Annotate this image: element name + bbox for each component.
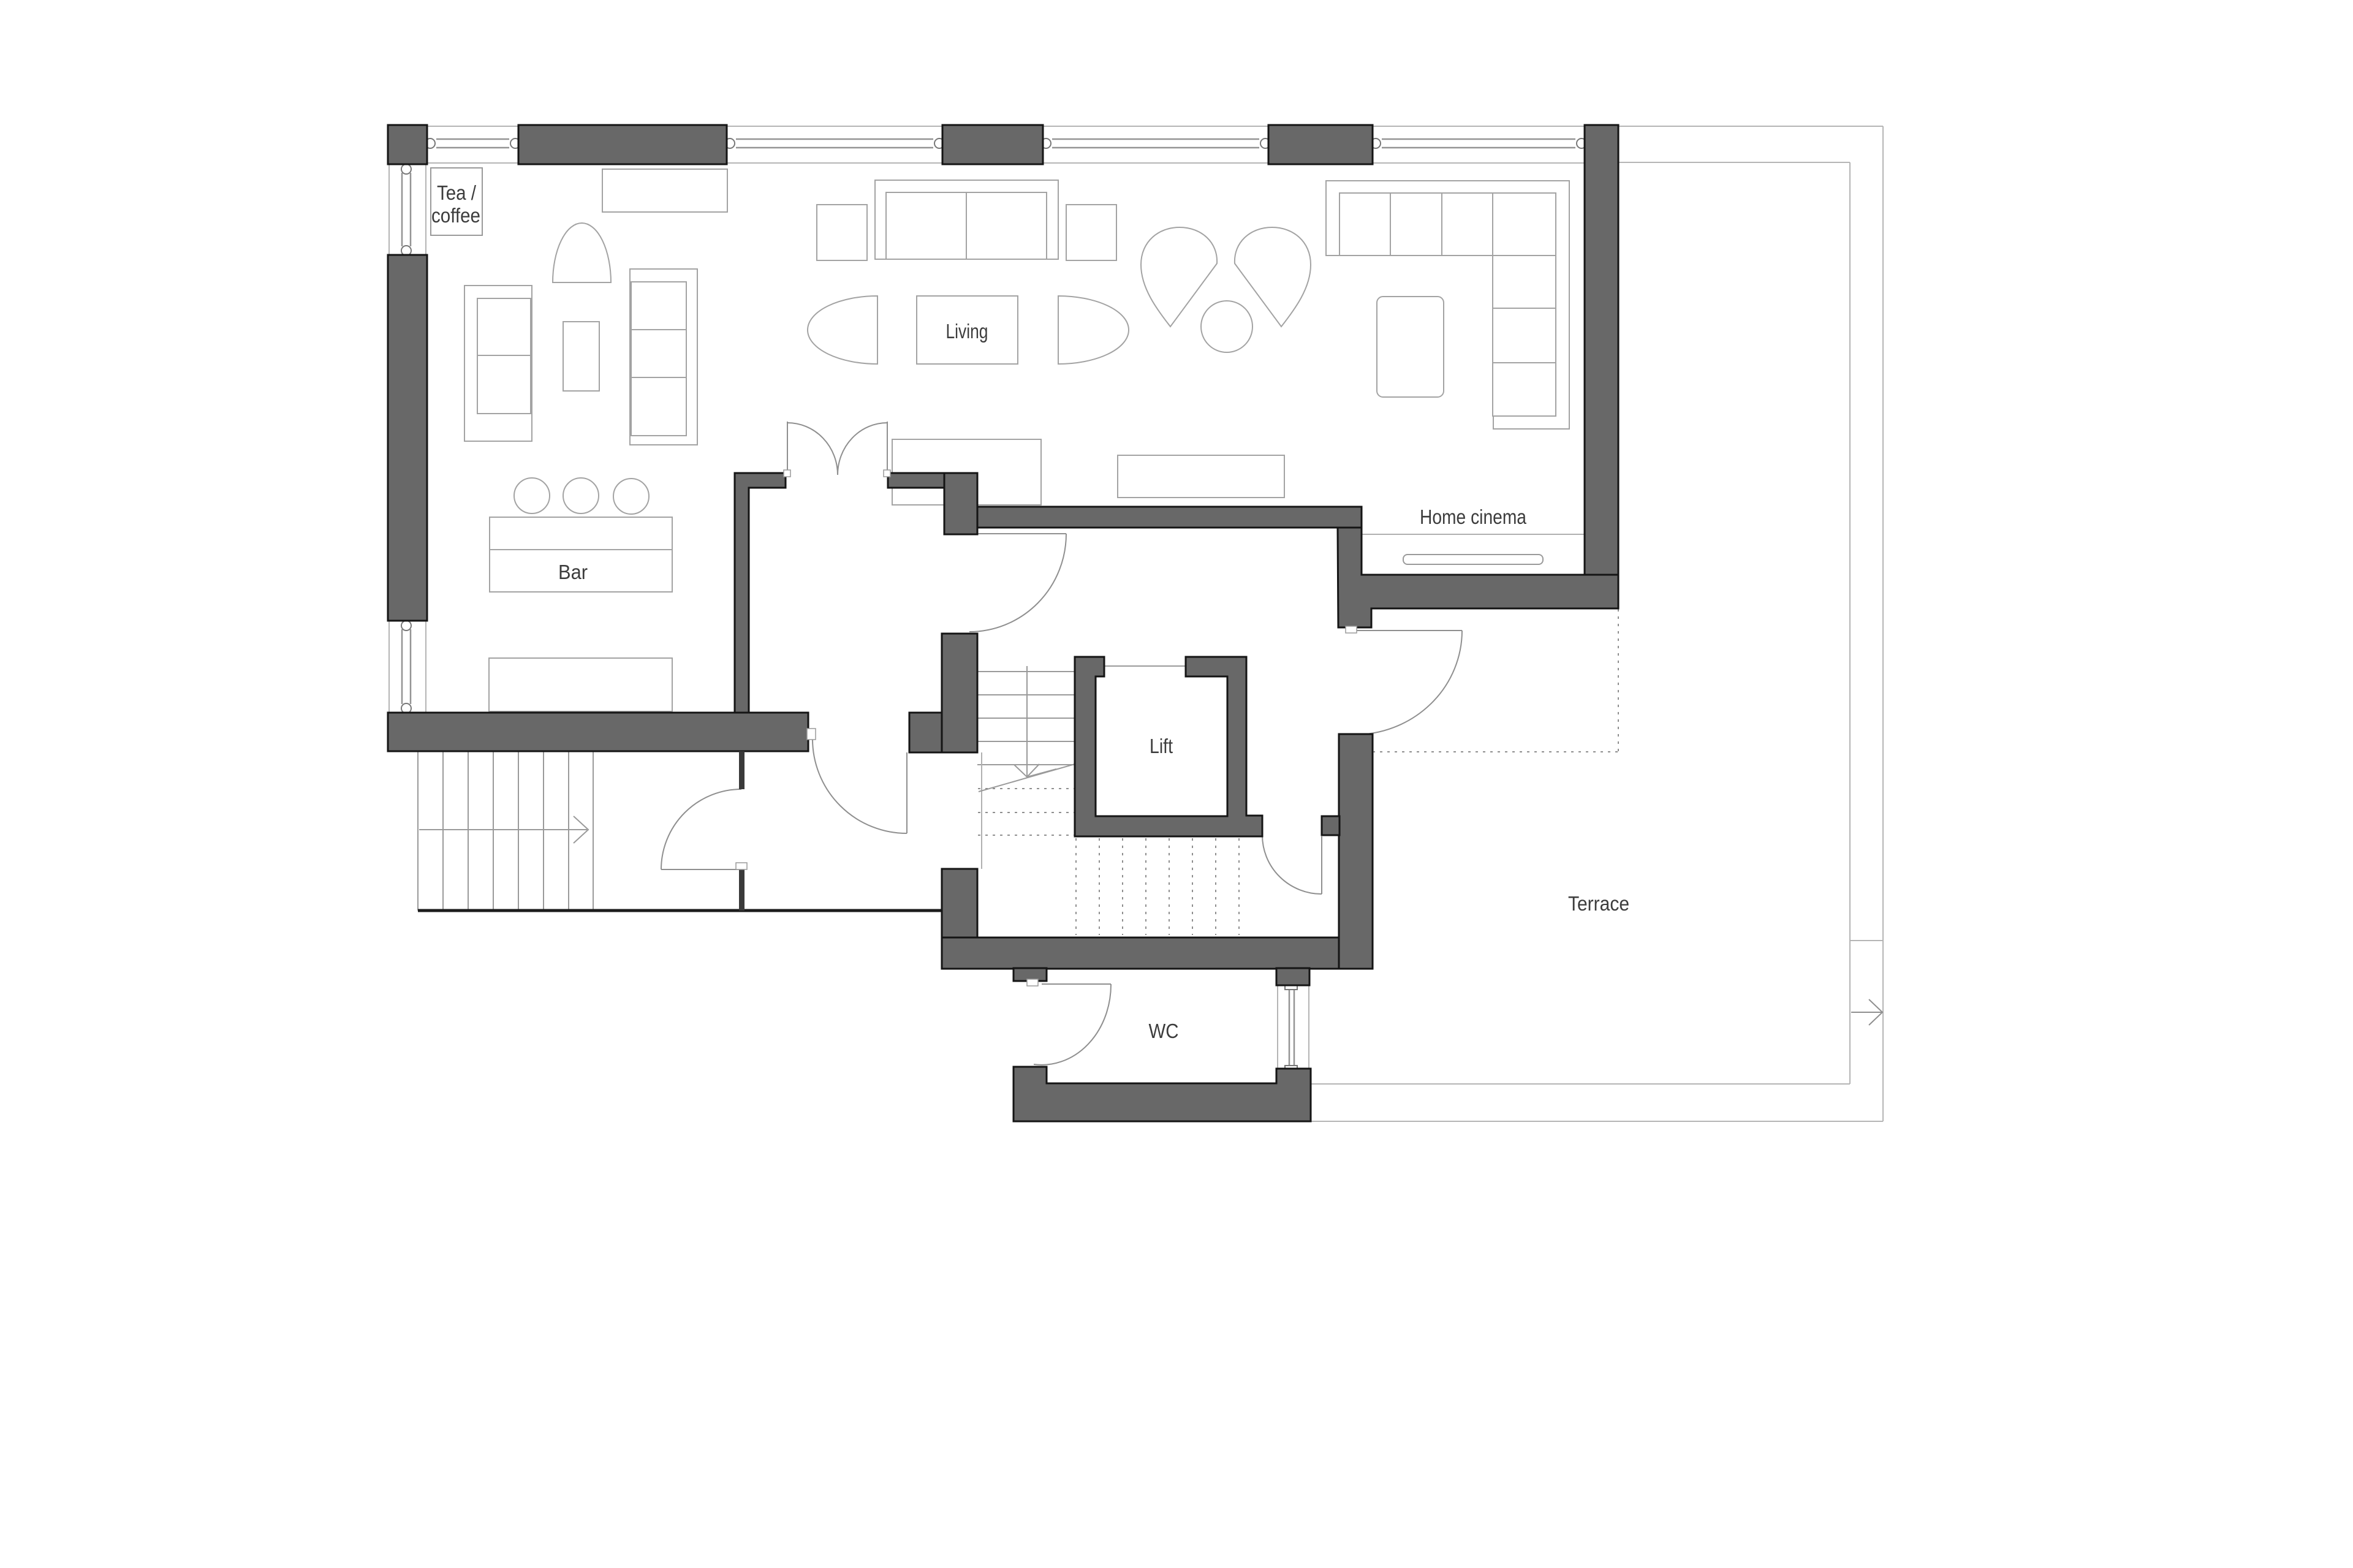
svg-text:Home cinema: Home cinema <box>1420 506 1527 528</box>
svg-text:Bar: Bar <box>558 561 588 583</box>
svg-text:Terrace: Terrace <box>1568 892 1629 915</box>
svg-text:Lift: Lift <box>1150 735 1173 757</box>
svg-text:WC: WC <box>1149 1020 1179 1042</box>
svg-text:Tea /: Tea / <box>437 181 477 204</box>
svg-text:Living: Living <box>946 320 988 343</box>
svg-text:coffee: coffee <box>431 204 480 227</box>
